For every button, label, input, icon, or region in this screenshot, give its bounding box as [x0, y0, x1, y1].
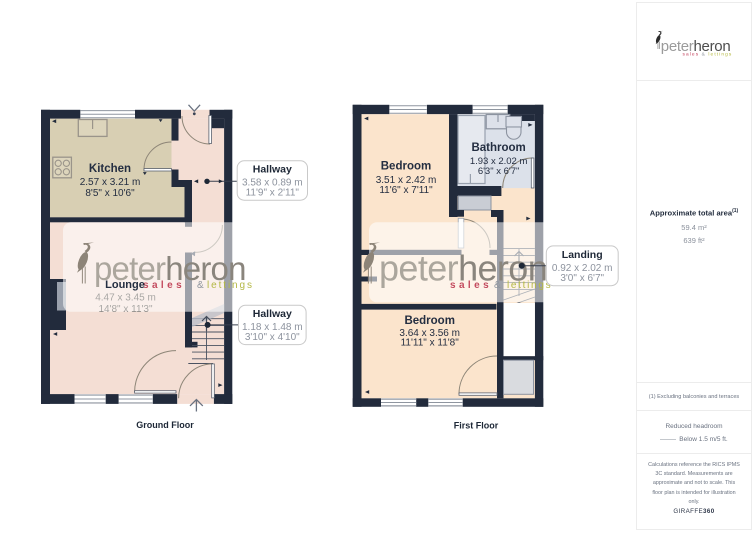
svg-text:Lounge: Lounge	[105, 279, 145, 291]
svg-text:8'5" x 10'6": 8'5" x 10'6"	[85, 188, 135, 199]
svg-text:Ground Floor: Ground Floor	[136, 420, 194, 430]
svg-text:3'0" x 6'7": 3'0" x 6'7"	[560, 273, 604, 284]
svg-text:Landing: Landing	[562, 249, 603, 261]
svg-text:2.57 x 3.21 m: 2.57 x 3.21 m	[80, 177, 141, 188]
svg-text:Bedroom: Bedroom	[381, 161, 431, 173]
svg-text:11'9" x 2'11": 11'9" x 2'11"	[246, 188, 300, 199]
svg-text:sales & lettings: sales & lettings	[683, 51, 733, 57]
svg-text:Bedroom: Bedroom	[404, 315, 454, 327]
svg-text:Bathroom: Bathroom	[471, 142, 525, 154]
svg-text:First Floor: First Floor	[454, 421, 499, 431]
svg-text:sales: sales	[143, 280, 185, 291]
svg-text:Kitchen: Kitchen	[89, 163, 131, 175]
svg-text:sales: sales	[450, 280, 492, 291]
svg-text:11'6" x 7'11": 11'6" x 7'11"	[379, 185, 433, 196]
svg-text:lettings: lettings	[507, 280, 552, 291]
svg-text:&: &	[197, 280, 204, 291]
svg-text:&: &	[494, 280, 501, 291]
svg-text:6'3" x 6'7": 6'3" x 6'7"	[478, 166, 520, 177]
svg-text:Hallway: Hallway	[253, 308, 292, 320]
svg-text:lettings: lettings	[207, 280, 254, 291]
svg-text:11'11" x 11'8": 11'11" x 11'8"	[401, 338, 460, 349]
svg-text:Hallway: Hallway	[253, 164, 292, 176]
svg-text:3'10" x 4'10": 3'10" x 4'10"	[245, 332, 300, 343]
